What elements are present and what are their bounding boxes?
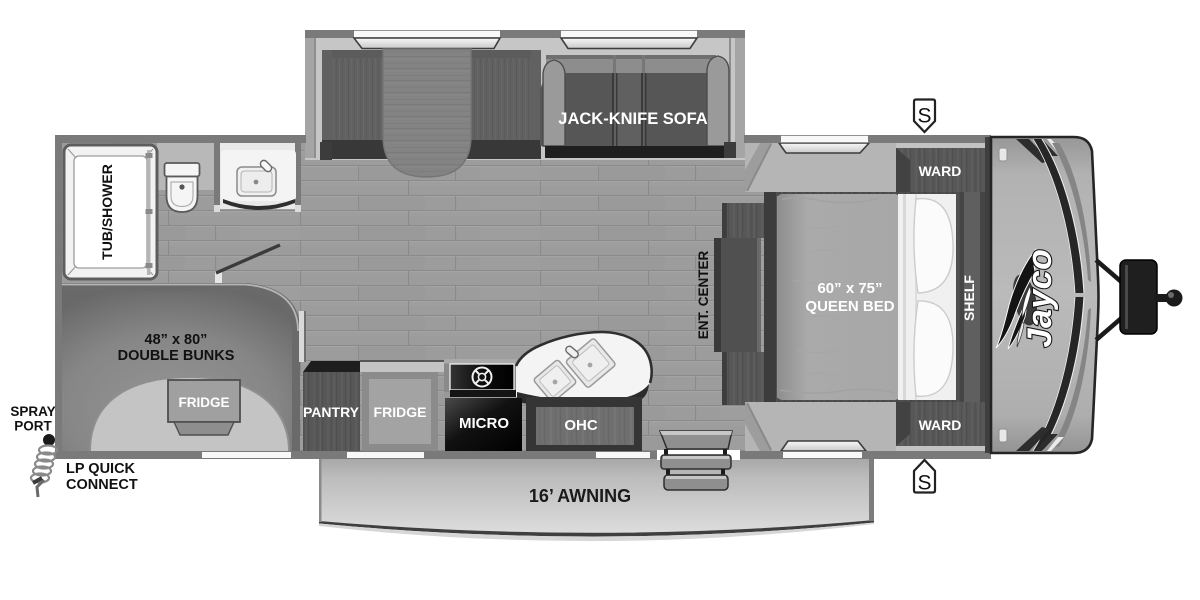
svg-text:TUB/SHOWER: TUB/SHOWER [99, 164, 115, 260]
svg-text:48” x 80”: 48” x 80” [145, 332, 208, 348]
svg-text:Jayco: Jayco [1021, 249, 1059, 348]
svg-text:16’ AWNING: 16’ AWNING [529, 486, 631, 506]
svg-text:WARD: WARD [919, 417, 962, 433]
svg-text:LP QUICK: LP QUICK [66, 461, 136, 477]
svg-text:FRIDGE: FRIDGE [178, 395, 229, 410]
svg-text:SPRAY: SPRAY [10, 404, 55, 419]
svg-text:DOUBLE BUNKS: DOUBLE BUNKS [118, 348, 235, 364]
svg-text:FRIDGE: FRIDGE [374, 404, 427, 420]
svg-text:PORT: PORT [14, 419, 52, 434]
svg-text:OHC: OHC [564, 417, 598, 434]
svg-text:CONNECT: CONNECT [66, 477, 138, 493]
svg-text:WARD: WARD [919, 163, 962, 179]
svg-text:ENT. CENTER: ENT. CENTER [696, 250, 711, 339]
svg-text:JACK-KNIFE SOFA: JACK-KNIFE SOFA [558, 110, 708, 128]
svg-text:QUEEN BED: QUEEN BED [805, 298, 894, 315]
svg-text:MICRO: MICRO [459, 415, 509, 432]
svg-text:S: S [917, 472, 931, 495]
svg-text:SHELF: SHELF [961, 275, 977, 321]
svg-text:PANTRY: PANTRY [303, 404, 360, 420]
svg-text:S: S [917, 105, 931, 128]
svg-text:60” x 75”: 60” x 75” [817, 280, 882, 297]
